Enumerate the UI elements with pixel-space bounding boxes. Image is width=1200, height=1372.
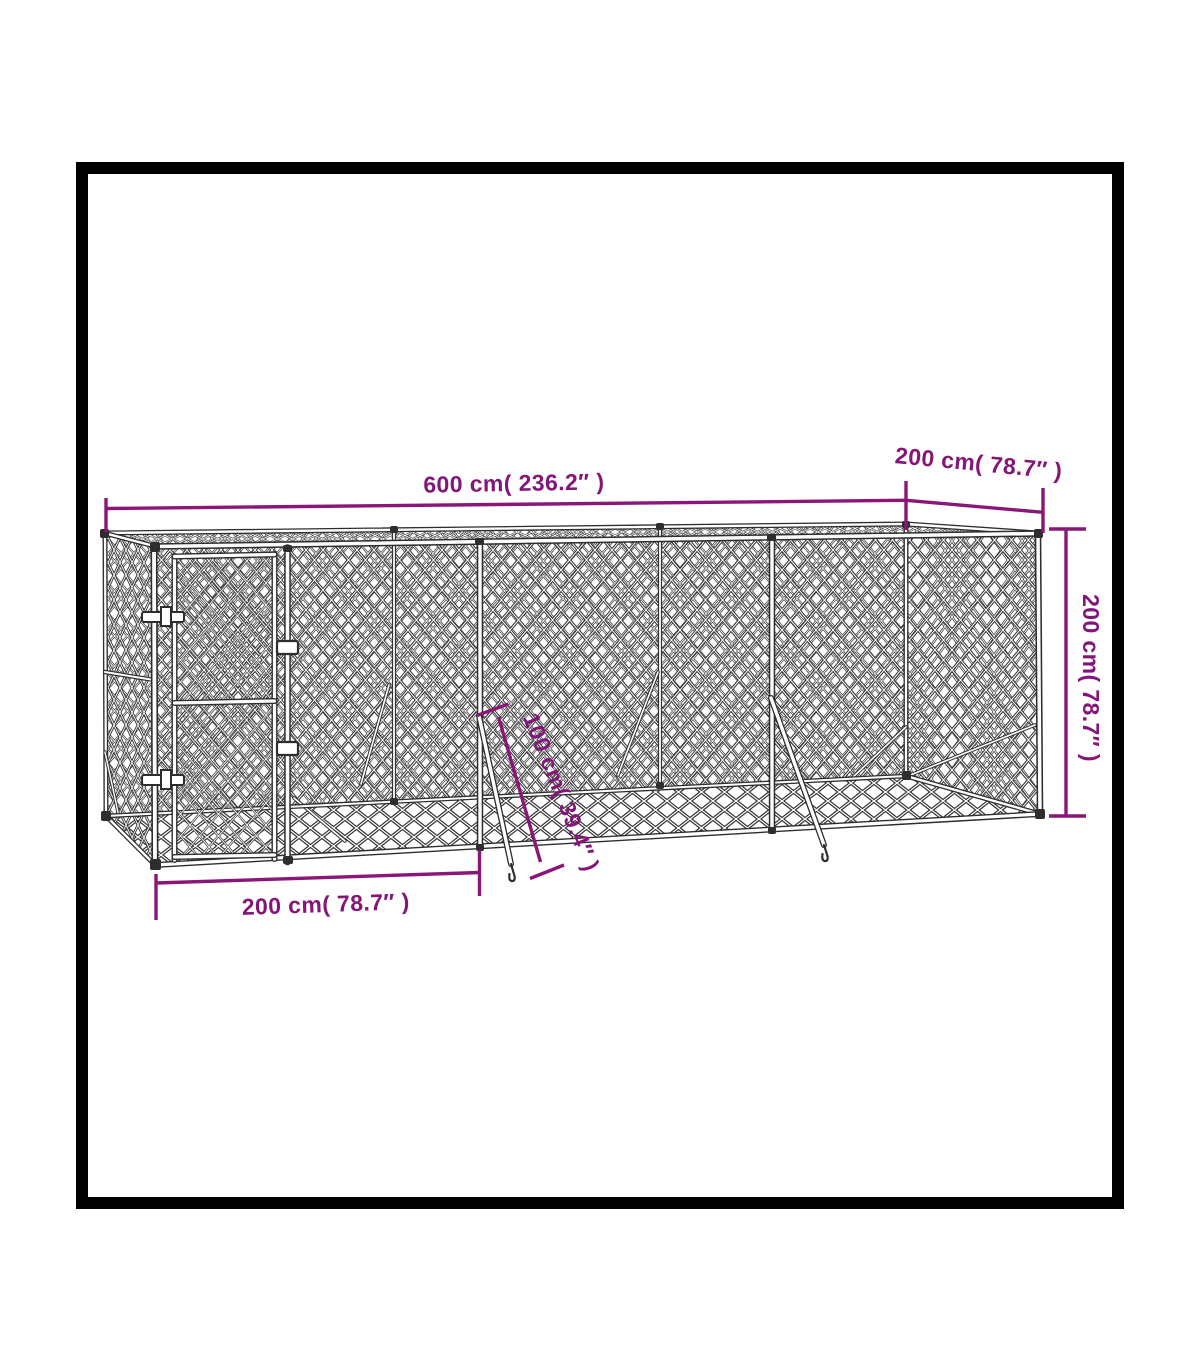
svg-text:200 cm( 78.7″ ): 200 cm( 78.7″ ) (1078, 594, 1104, 762)
svg-text:600 cm( 236.2″ ): 600 cm( 236.2″ ) (423, 468, 605, 497)
